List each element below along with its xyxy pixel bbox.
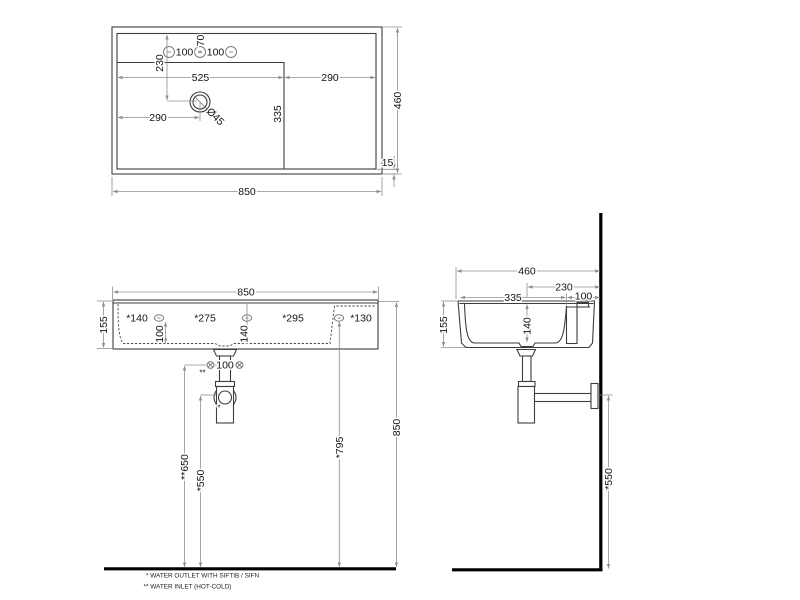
side-height-label: 155 bbox=[438, 316, 450, 334]
top-bowl-length-label: 335 bbox=[272, 105, 284, 123]
footnote-inlet: ** WATER INLET (HOT-COLD) bbox=[144, 584, 232, 591]
trap-outlet-mark: * bbox=[217, 404, 220, 413]
side-back-ledge-label: 100 bbox=[575, 291, 593, 303]
top-deck-width-label: 290 bbox=[321, 72, 339, 84]
front-width-label: 850 bbox=[237, 287, 255, 299]
top-bowl-offset-label: 230 bbox=[154, 54, 166, 72]
side-drain-to-wall-label: 230 bbox=[555, 282, 573, 294]
side-bowl-inner-height-label: 140 bbox=[522, 317, 534, 335]
top-width-label: 850 bbox=[238, 186, 256, 198]
top-rim-thickness-label: 15 bbox=[382, 157, 394, 169]
front-hole-drop-left-label: 100 bbox=[154, 325, 166, 343]
inlet-pitch-label: 100 bbox=[216, 360, 234, 372]
front-hole-dim-2-label: *275 bbox=[194, 313, 216, 325]
side-trap-bottle bbox=[518, 387, 535, 424]
front-hole-dim-3-label: *295 bbox=[282, 313, 304, 325]
side-trap-collar bbox=[519, 382, 536, 387]
top-drain-offset-label: 290 bbox=[149, 112, 167, 124]
trap-collar bbox=[216, 382, 235, 387]
top-bowl-width-label: 525 bbox=[192, 72, 210, 84]
top-tap-pitch-right-label: 100 bbox=[207, 47, 225, 59]
top-tap-pitch-left-label: 100 bbox=[176, 47, 194, 59]
rim-height-label: 850 bbox=[391, 419, 403, 437]
side-bowl-depth-label: 335 bbox=[504, 292, 522, 304]
front-hole-dim-1-label: *140 bbox=[126, 313, 148, 325]
fixing-height-label: *795 bbox=[334, 437, 346, 459]
side-outlet-height-label: *550 bbox=[603, 468, 615, 490]
outlet-height-label: *550 bbox=[195, 470, 207, 492]
technical-drawing-page: 100 100 70 230 525 290 290 335 Ø45 15 46… bbox=[0, 0, 800, 600]
front-height-label: 155 bbox=[98, 316, 110, 334]
front-hole-drop-center-label: 140 bbox=[239, 325, 251, 343]
inlet-height-label: **650 bbox=[179, 454, 191, 480]
side-outlet-pipe bbox=[535, 394, 592, 402]
front-hole-dim-4-label: *130 bbox=[350, 313, 372, 325]
side-tailpipe bbox=[523, 356, 532, 382]
top-tap-offset-label: 70 bbox=[195, 35, 207, 47]
side-depth-label: 460 bbox=[518, 266, 536, 278]
washbasin-technical-drawing: 100 100 70 230 525 290 290 335 Ø45 15 46… bbox=[0, 0, 800, 600]
drain-flange bbox=[214, 350, 237, 357]
side-drain-flange bbox=[517, 350, 536, 357]
side-wall-flange bbox=[591, 384, 598, 409]
top-depth-label: 460 bbox=[392, 92, 404, 110]
footnote-outlet: * WATER OUTLET WITH SIFTIB / SIFN bbox=[146, 573, 260, 580]
inlet-mark-label: ** bbox=[199, 369, 205, 378]
